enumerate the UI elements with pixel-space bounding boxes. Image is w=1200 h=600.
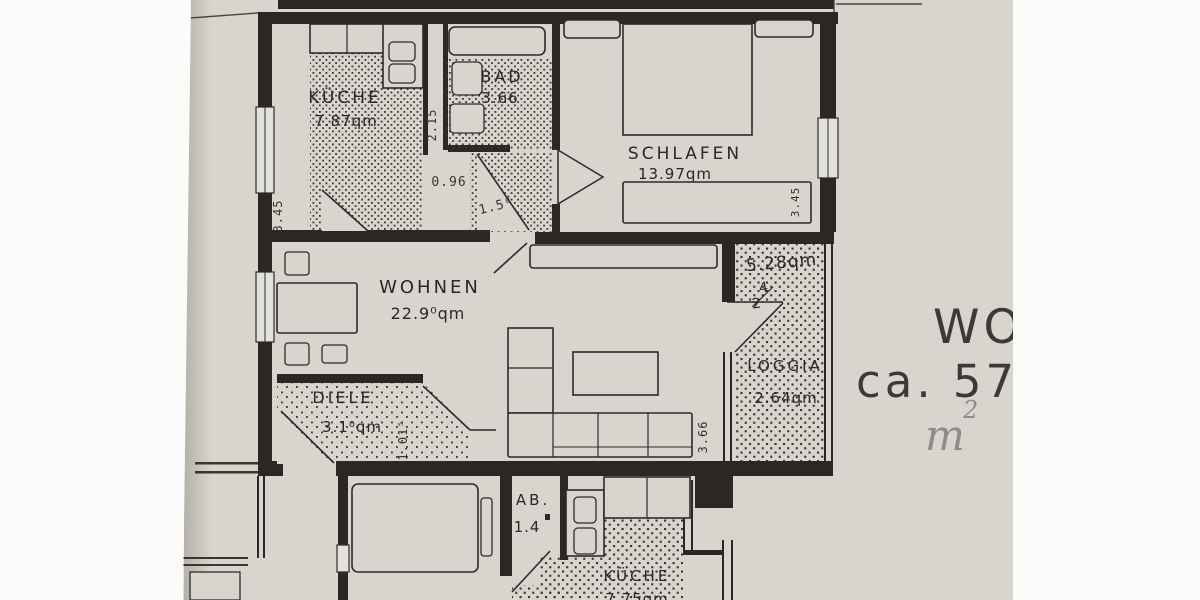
toilet (450, 104, 484, 133)
bottom-wall (336, 461, 833, 476)
wall-flur-schlafen-upper (552, 24, 560, 150)
dining-chair-top (285, 252, 309, 275)
wall-diele-top (277, 374, 423, 383)
kueche-lower-label: KÜCHE (604, 566, 671, 585)
handwritten-unit-exponent: 2 (962, 396, 978, 424)
kueche-lower-hatch-a (604, 518, 683, 600)
lower-left-furniture (190, 572, 240, 600)
loggia-area: 2.64qm (754, 389, 818, 407)
lower-bed (352, 484, 478, 572)
dim-diele-width: 1.01⁵ (396, 419, 410, 460)
loggia-label: LOGGIA (747, 357, 823, 375)
lower-counter (604, 477, 690, 518)
wall-wohnen-loggia-lower-b (730, 352, 732, 461)
bad-label: BAD (480, 67, 523, 86)
floor-plan-svg: KÜCHE 7.87qm BAD 3.66 SCHLAFEN 13.97qm W… (0, 0, 1200, 600)
kueche-appliance-block (383, 24, 423, 88)
dim-niche-depth: 2.15 (425, 109, 439, 142)
wall-wohnen-loggia-upper (722, 244, 735, 302)
lower-nightstand (481, 498, 492, 556)
wall-wohnen-loggia-lower-a (723, 352, 725, 461)
dim-kueche-left-wall: 3.45 (271, 200, 285, 233)
bad-area: 3.66 (481, 89, 518, 107)
dining-table (277, 283, 357, 333)
sideboard (530, 245, 717, 268)
wohnen-area: 22.9⁰qm (391, 304, 466, 323)
handwritten-line1: WO (933, 300, 1024, 355)
wall-kueche-wohnen (272, 230, 490, 242)
kueche-area: 7.87qm (314, 112, 378, 130)
kueche-lower-hatch-c (512, 585, 560, 600)
schlafen-shelf-right (755, 20, 813, 37)
left-wall (258, 12, 272, 476)
floor-plan-scan: KÜCHE 7.87qm BAD 3.66 SCHLAFEN 13.97qm W… (0, 0, 1200, 600)
wall-schlafen-wohnen (535, 232, 834, 244)
schlafen-shelf-left (564, 20, 620, 38)
handwritten-line2: ca. 57 (856, 355, 1018, 408)
wall-flur-schlafen-lower (552, 204, 560, 244)
schlafen-label: SCHLAFEN (628, 144, 742, 164)
party-wall-line-a (195, 462, 258, 465)
schlafen-window (818, 118, 838, 178)
party-wall-line-b (195, 471, 258, 474)
coffee-table (573, 352, 658, 395)
bed (623, 24, 752, 135)
dim-schlafen-right-wall: 3.45 (789, 187, 802, 218)
dining-chair-right (322, 345, 347, 363)
outside-paper-right (1013, 0, 1200, 600)
washbasin (452, 62, 482, 95)
bathtub (449, 27, 545, 55)
top-wall (258, 12, 838, 24)
ab-superscript-mark (545, 514, 550, 520)
kueche-lower-area: 7.75qm (605, 590, 669, 600)
ab-label: AB. (516, 491, 550, 509)
schlafen-area: 13.97qm (638, 165, 712, 183)
kueche-window (256, 107, 274, 193)
dim-flur-width: 0.96 (431, 175, 466, 190)
ab-area: 1.4 (514, 518, 541, 536)
handwritten-unit: m (925, 411, 965, 460)
outside-paper-left (0, 0, 191, 600)
loggia-outer-wall-a (824, 232, 826, 468)
loggia-outer-wall-b (831, 232, 833, 468)
diele-label: DIELE (312, 388, 373, 407)
wardrobe (623, 182, 811, 223)
loggia-floor-hatch (735, 244, 824, 461)
kueche-label: KÜCHE (308, 86, 382, 108)
diele-area: 3.1⁰qm (322, 418, 382, 436)
outer-top-band (278, 0, 834, 9)
dim-loggia-depth: 3.66 (696, 421, 710, 454)
lower-sink-unit (566, 490, 604, 556)
dining-chair-left (285, 343, 309, 365)
wohnen-window (256, 272, 274, 342)
kueche-counter (310, 24, 387, 53)
wohnen-label: WOHNEN (379, 277, 481, 298)
